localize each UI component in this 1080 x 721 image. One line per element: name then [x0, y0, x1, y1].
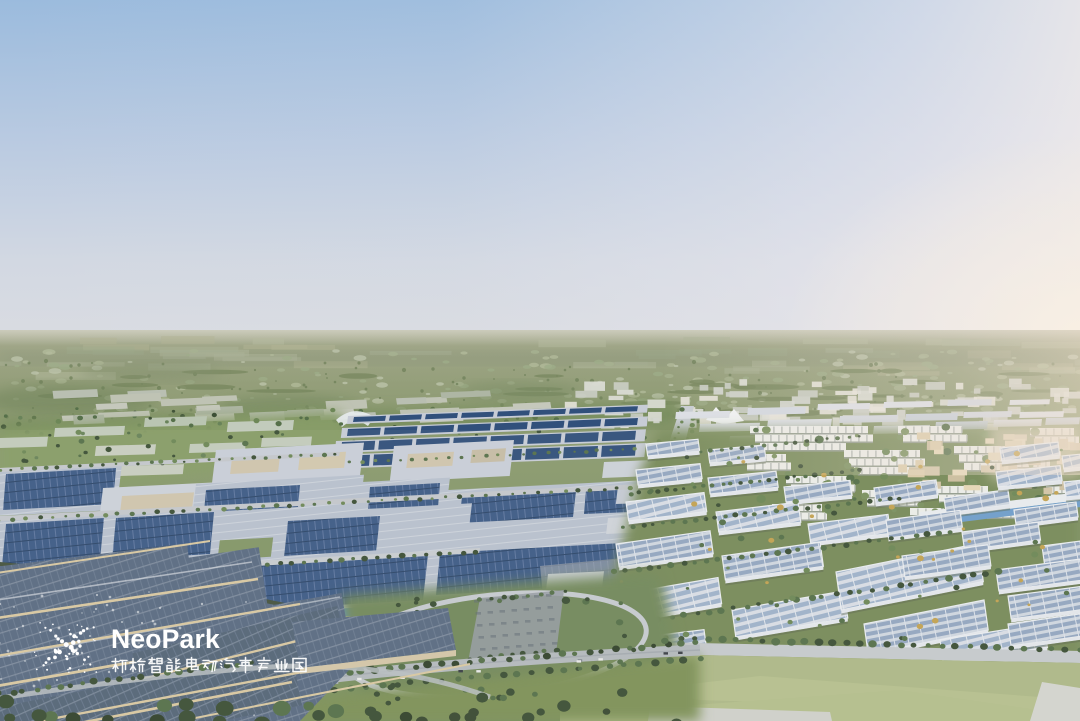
- svg-text:NeoPark: NeoPark: [111, 624, 220, 654]
